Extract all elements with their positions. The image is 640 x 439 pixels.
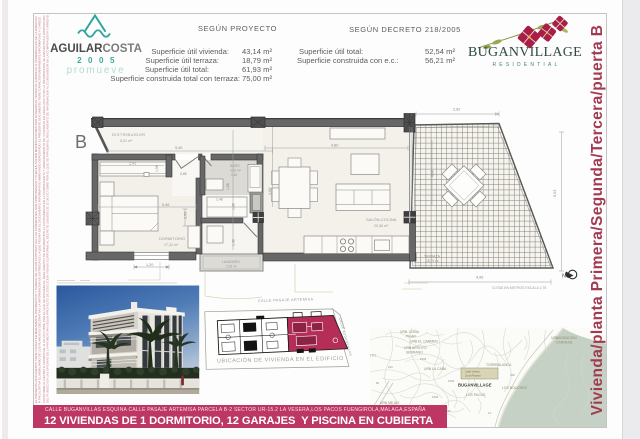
svg-text:1,48: 1,48 <box>232 203 236 210</box>
svg-text:2,56: 2,56 <box>184 212 188 219</box>
svg-text:233: 233 <box>388 365 393 369</box>
svg-text:Calle Violeta: Calle Violeta <box>465 370 480 374</box>
svg-text:340: 340 <box>510 373 515 377</box>
svg-text:SALÓN-COCINA: SALÓN-COCINA <box>366 217 397 222</box>
svg-text:5,03: 5,03 <box>553 190 557 197</box>
svg-text:1,20: 1,20 <box>146 263 153 267</box>
svg-text:1,48: 1,48 <box>216 198 223 202</box>
svg-text:9,40: 9,40 <box>175 146 182 150</box>
svg-text:LOS PACOS: LOS PACOS <box>466 393 486 397</box>
svg-text:60: 60 <box>376 381 380 385</box>
svg-text:CALLE PASAJE ARTEMISA: CALLE PASAJE ARTEMISA <box>258 297 314 303</box>
svg-text:12: 12 <box>488 411 492 415</box>
svg-text:URB EL CARMEN: URB EL CARMEN <box>410 340 438 344</box>
svg-text:4,68: 4,68 <box>431 170 435 177</box>
svg-text:4,80: 4,80 <box>331 144 338 148</box>
svg-text:COTAS EN METROS ESCALA 1:75: COTAS EN METROS ESCALA 1:75 <box>492 286 546 290</box>
svg-text:URB ARROYO: URB ARROYO <box>404 346 427 350</box>
svg-text:Zona Picasso: Zona Picasso <box>465 374 481 378</box>
svg-text:18,79 m²: 18,79 m² <box>426 259 439 263</box>
svg-text:1,98: 1,98 <box>155 165 159 172</box>
svg-text:20,58 m²: 20,58 m² <box>374 224 389 228</box>
svg-text:BUGANVILLAGE: BUGANVILLAGE <box>458 383 492 388</box>
svg-text:B: B <box>75 132 87 152</box>
svg-text:1620: 1620 <box>448 379 455 383</box>
svg-text:1546: 1546 <box>432 395 439 399</box>
svg-text:2,06 m²: 2,06 m² <box>226 265 237 269</box>
svg-text:N: N <box>562 274 566 280</box>
svg-text:5,46: 5,46 <box>162 203 169 207</box>
svg-text:URB. DOÑA: URB. DOÑA <box>400 329 420 334</box>
svg-text:EL: EL <box>366 349 370 353</box>
svg-text:17,32 m²: 17,32 m² <box>164 243 179 247</box>
svg-text:1,88: 1,88 <box>226 183 230 190</box>
svg-text:LAVADERO: LAVADERO <box>222 260 240 264</box>
svg-text:0,85: 0,85 <box>180 172 187 176</box>
svg-text:COTO: COTO <box>366 354 376 358</box>
svg-text:1,48: 1,48 <box>232 239 236 246</box>
svg-text:BAÑO: BAÑO <box>230 163 240 168</box>
svg-text:2,82: 2,82 <box>453 108 460 112</box>
svg-text:LOS BOLICHES: LOS BOLICHES <box>502 386 528 390</box>
svg-text:TORREBLANCA: TORREBLANCA <box>486 363 512 367</box>
svg-text:3,02 m²: 3,02 m² <box>230 169 241 173</box>
svg-text:PILAR: PILAR <box>406 335 416 339</box>
svg-text:1,46: 1,46 <box>231 173 237 177</box>
svg-text:URB LA CAÑA: URB LA CAÑA <box>424 366 447 371</box>
svg-text:4,06: 4,06 <box>268 188 272 195</box>
svg-text:4,96: 4,96 <box>476 276 483 280</box>
svg-text:CARVAJAL: CARVAJAL <box>556 341 573 345</box>
svg-text:2,41: 2,41 <box>129 162 136 166</box>
svg-text:DORMITORIO: DORMITORIO <box>159 236 185 241</box>
svg-text:1503: 1503 <box>420 357 427 361</box>
svg-text:DISTRIBUIDOR: DISTRIBUIDOR <box>112 132 145 137</box>
svg-text:TERRAZA: TERRAZA <box>424 255 441 259</box>
svg-text:5,01 m²: 5,01 m² <box>120 139 133 143</box>
svg-text:SERRANO: SERRANO <box>406 351 423 355</box>
svg-text:URBANIZACIÓN: URBANIZACIÓN <box>551 335 577 340</box>
